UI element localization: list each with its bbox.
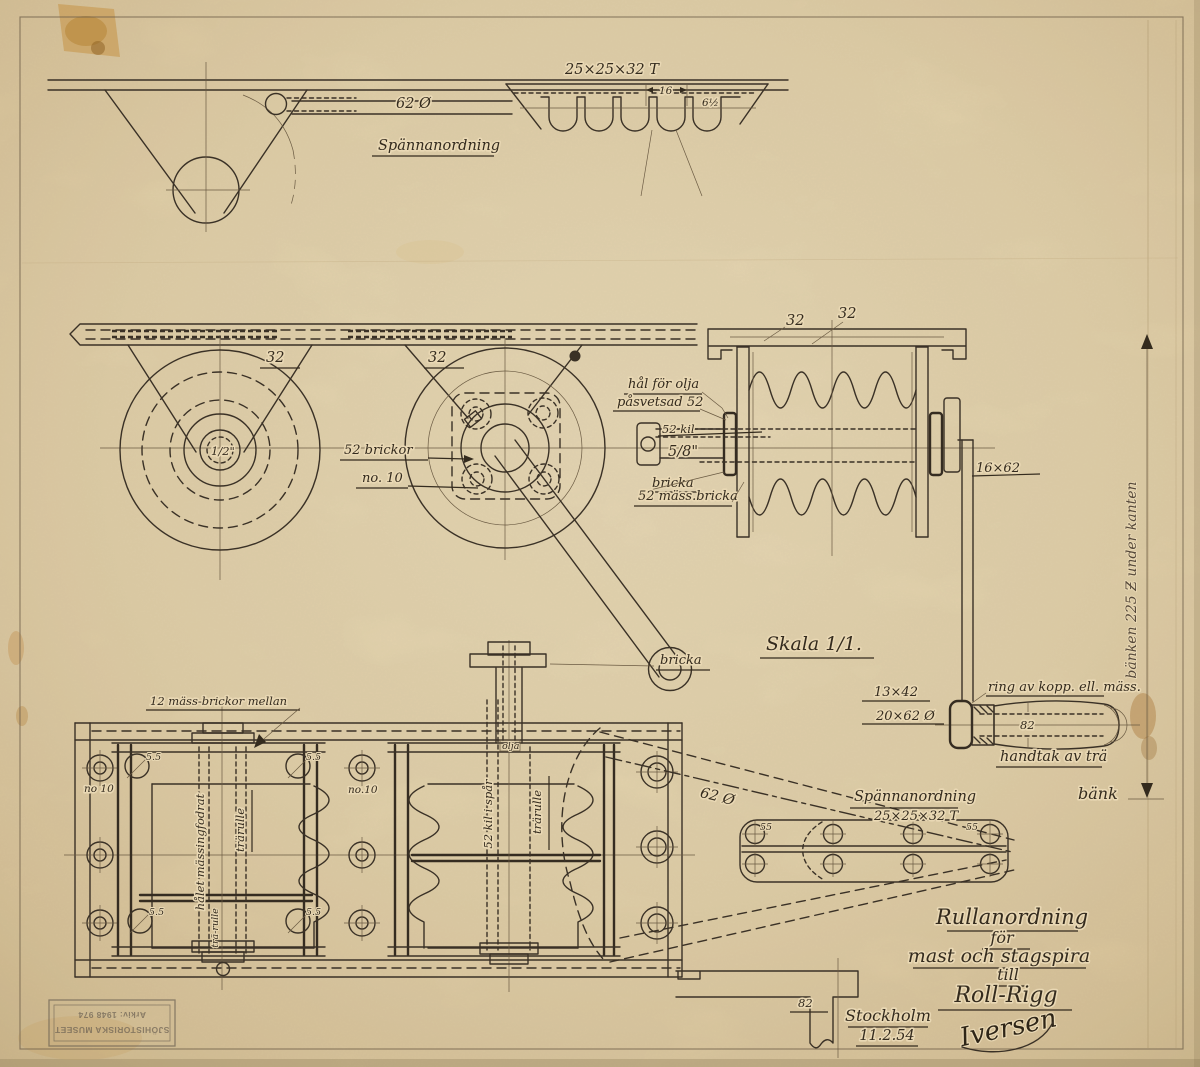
no10-label-left: no 10 (84, 783, 114, 795)
stamp-line-1: SJÖHISTORISKA MUSEET (54, 1025, 169, 1035)
drawing-sheet: 25×25×32 T 62 Ø (0, 0, 1200, 1067)
tensioner-label: Spännanordning (854, 789, 976, 805)
bore-label: 1/2" (211, 444, 235, 458)
edge-stain (8, 631, 24, 665)
bolt-dim: 5.5 (146, 752, 161, 763)
roller-small-label: trä-rulle (210, 908, 221, 948)
view-title: Spännanordning (378, 138, 500, 154)
stamp-line-2: Arkiv: 1948 974 (78, 1010, 146, 1020)
top-view-title: Spännanordning (372, 138, 500, 156)
place-label: Stockholm (845, 1006, 931, 1025)
bolt-dim: 5.5 (306, 752, 321, 763)
right-stain (1130, 693, 1156, 739)
washers-label-1: 52 brickor (344, 443, 413, 458)
tensioner-profile-dim: 25×25×32 T (873, 809, 960, 824)
oil-label: olja (502, 741, 520, 752)
plate-hole-dim: 55 (966, 822, 978, 833)
date-label: 11.2.54 (859, 1028, 914, 1044)
roller-label-right: trärulle (530, 790, 544, 834)
rod-dim-label: 62 Ø (396, 96, 432, 112)
scale-note: Skala 1/1. (760, 633, 874, 658)
pin-dim-label: 5/8" (668, 444, 698, 460)
handle-dim-label: 82 (1020, 718, 1035, 732)
title-line-3: mast och stagspira (908, 945, 1090, 967)
title-line-4: till (997, 965, 1019, 984)
profile-dim-label: 25×25×32 T (564, 62, 660, 78)
bracket-dim-label: 82 (798, 996, 813, 1010)
tip-dim-label: 6½ (702, 97, 719, 109)
key-note-label: 52 kil i spår (481, 778, 495, 849)
brass-washer-label: 52 mäss.bricka (638, 489, 738, 504)
washers-label-2: no. 10 (362, 471, 403, 486)
scan-edge-shadow-bottom (0, 1059, 1200, 1067)
pitch-label: 16 (659, 85, 673, 97)
spacers-label: 12 mäss-brickor mellan (150, 694, 287, 708)
bracket-dim-label: 16×62 (976, 461, 1020, 476)
oil-label-1: hål för olja (628, 376, 699, 392)
bolt-dim: 5.5 (306, 907, 321, 918)
plate-hole-dim: 55 (760, 822, 772, 833)
bench-note: bänken 225 Ƶ under kanten (1124, 481, 1140, 678)
cap-dim-label: 13×42 (874, 685, 918, 700)
rail-dim-1: 32 (786, 313, 804, 329)
no10-label-middle: no.10 (348, 784, 378, 796)
flange-dim-left: 32 (266, 350, 284, 366)
bolt-dim: 5.5 (149, 907, 164, 918)
key-label: 52 kil (662, 422, 695, 436)
roller-label-left: trärulle (233, 808, 247, 852)
scan-edge-shadow-right (1194, 0, 1200, 1067)
oil-label-2: påsvetsad 52 (617, 394, 703, 410)
ring-note-label: ring av kopp. ell. mäss. (988, 680, 1141, 695)
title-line-5: Roll-Rigg (953, 983, 1057, 1008)
rail-dim-2: 32 (838, 306, 856, 322)
scale-label: Skala 1/1. (766, 633, 862, 655)
flange-dim-mid: 32 (428, 350, 446, 366)
bench-label: bänk (1078, 784, 1118, 803)
washer-callout-label: bricka (660, 653, 702, 668)
title-line-1: Rullanordning (935, 905, 1088, 929)
hub-dim-label: 20×62 Ø (875, 709, 935, 724)
wood-note-label: handtak av trä (1000, 749, 1107, 765)
bore-note-label: hålet mässingfodrat (193, 793, 207, 910)
